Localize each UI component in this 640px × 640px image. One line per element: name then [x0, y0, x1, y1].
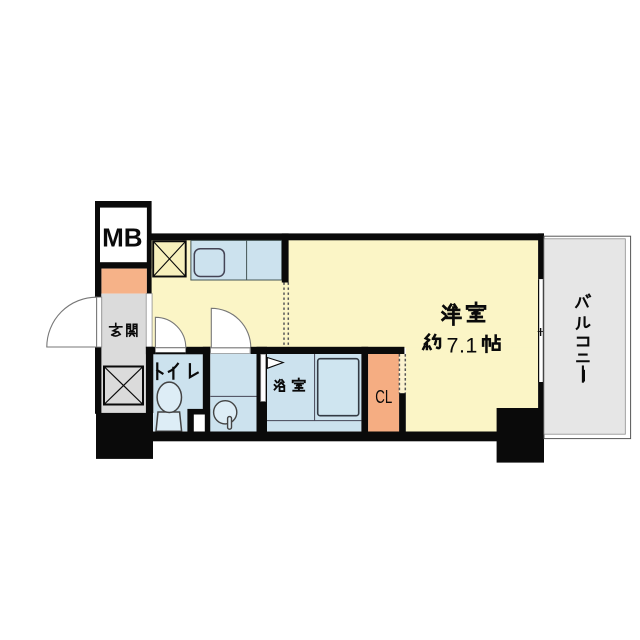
svg-text:7.1: 7.1 — [447, 333, 478, 357]
svg-text:CL: CL — [375, 387, 392, 407]
svg-text:MB: MB — [102, 223, 142, 253]
